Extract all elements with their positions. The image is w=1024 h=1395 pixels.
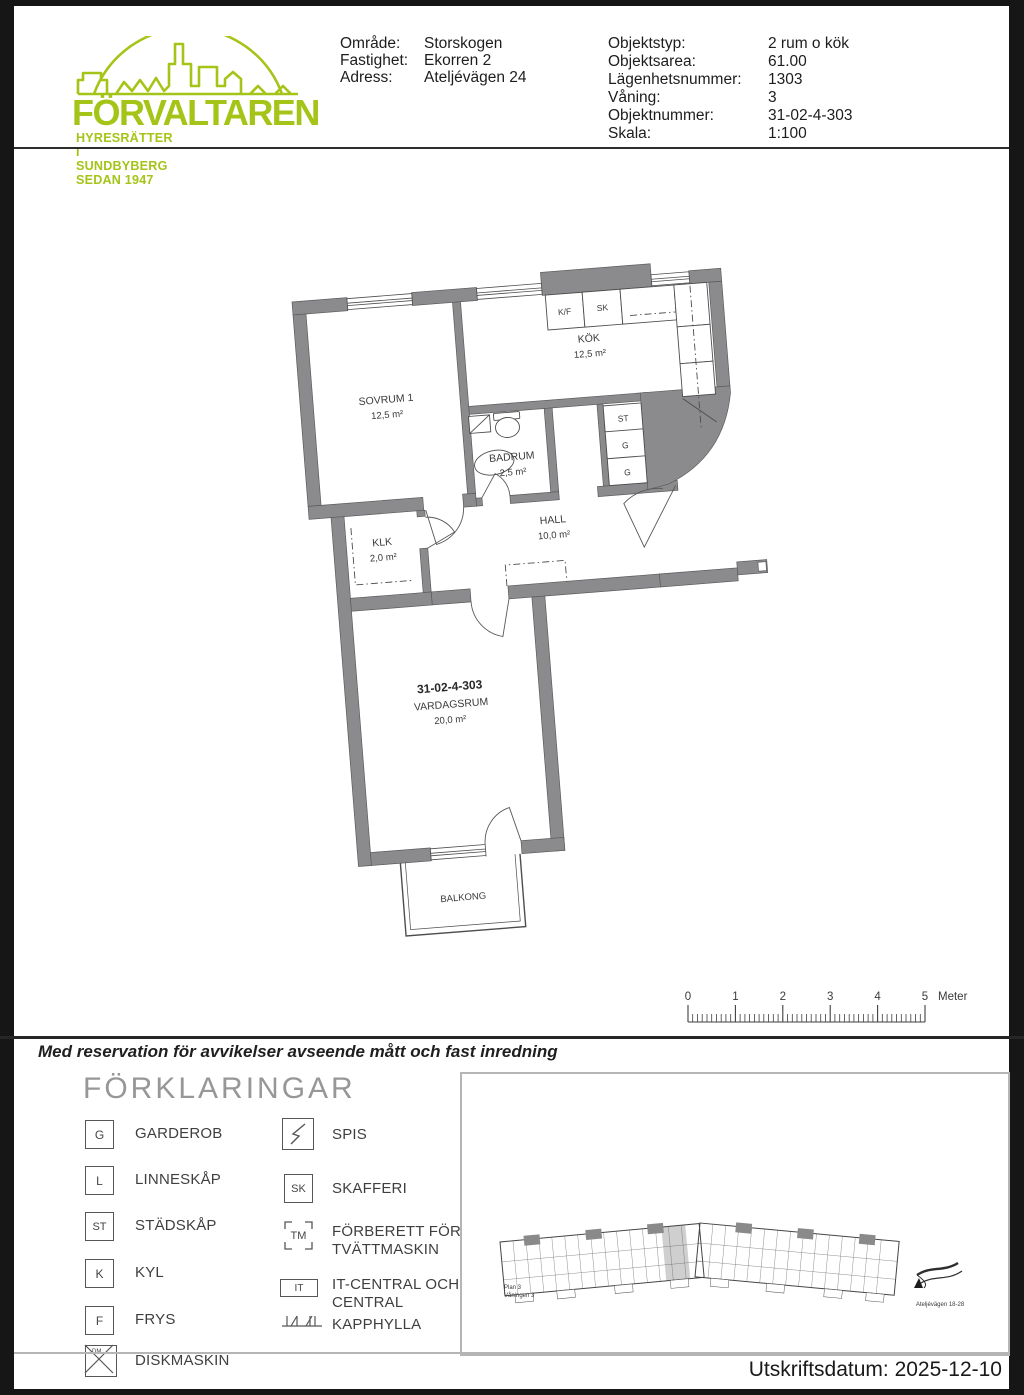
garderob-glyph: G — [95, 1128, 104, 1142]
objektsarea-value: 61.00 — [768, 53, 807, 71]
room-area-kok: 12,5 m² — [574, 348, 607, 361]
legend-title: FÖRKLARINGAR — [83, 1072, 356, 1106]
objektsarea-label: Objektsarea: — [608, 53, 696, 71]
room-label-balkong: BALKONG — [440, 891, 487, 906]
window-icon — [347, 271, 734, 864]
walls — [291, 256, 788, 868]
it-central-icon: IT — [280, 1279, 318, 1297]
lagenhetsnummer-label: Lägenhetsnummer: — [608, 71, 742, 89]
kapphylla-label: KAPPHYLLA — [332, 1316, 421, 1334]
room-area-vardagsrum: 20,0 m² — [434, 714, 467, 727]
apartment-id: 31-02-4-303 — [417, 677, 484, 696]
room-area-klk: 2,0 m² — [370, 552, 398, 565]
room-label-klk: KLK — [372, 536, 393, 550]
kyl-glyph: K — [95, 1267, 103, 1281]
footer-rule — [14, 1352, 1009, 1354]
omrade-label: Område: — [340, 35, 400, 53]
building-overview-box: Plan 3 Våningen 3 Ateljévägen 18-28 — [460, 1072, 1010, 1356]
building-overview-map: Plan 3 Våningen 3 Ateljévägen 18-28 — [462, 1074, 1008, 1354]
objektstyp-value: 2 rum o kök — [768, 35, 849, 53]
overview-caption-line2: Våningen 3 — [504, 1292, 535, 1299]
objektnummer-label: Objektnummer: — [608, 107, 714, 125]
room-label-vardagsrum: VARDAGSRUM — [413, 696, 488, 714]
skala-value: 1:100 — [768, 125, 807, 143]
room-label-kok: KÖK — [577, 332, 600, 346]
logo-name: FÖRVALTAREN — [72, 92, 319, 134]
kapphylla-icon — [280, 1312, 324, 1335]
frys-label: FRYS — [135, 1311, 176, 1329]
garderob-icon: G — [85, 1120, 114, 1149]
scale-unit: Meter — [938, 991, 968, 1003]
header-divider — [14, 147, 1009, 149]
scale-tick-1: 1 — [732, 991, 738, 1003]
adress-label: Adress: — [340, 69, 393, 87]
skafferi-icon: SK — [284, 1174, 313, 1203]
adress-value: Ateljévägen 24 — [424, 69, 527, 87]
skafferi-label: SKAFFERI — [332, 1180, 407, 1198]
scale-tick-3: 3 — [827, 991, 833, 1003]
lagenhetsnummer-value: 1303 — [768, 71, 802, 89]
frys-glyph: F — [96, 1314, 103, 1328]
diskmaskin-icon: DM — [85, 1345, 117, 1377]
scale-tick-4: 4 — [874, 991, 881, 1003]
room-label-hall: HALL — [539, 513, 566, 527]
scale-tick-5: 5 — [922, 991, 928, 1003]
kyl-icon: K — [85, 1259, 114, 1288]
overview-caption-line1: Plan 3 — [504, 1285, 522, 1291]
closet-label-g2: G — [624, 467, 631, 477]
linneskap-icon: L — [85, 1166, 114, 1195]
vaning-value: 3 — [768, 89, 777, 107]
closet-label-g1: G — [622, 440, 629, 450]
fixture-label-kf: K/F — [558, 306, 572, 317]
garderob-label: GARDEROB — [135, 1125, 222, 1143]
room-area-sovrum: 12,5 m² — [371, 409, 404, 422]
stadskap-icon: ST — [85, 1212, 114, 1241]
it-central-glyph: IT — [295, 1283, 304, 1294]
room-label-badrum: BADRUM — [489, 449, 535, 465]
diskmaskin-label: DISKMASKIN — [135, 1352, 230, 1370]
objektstyp-label: Objektstyp: — [608, 35, 686, 53]
kyl-label: KYL — [135, 1264, 164, 1282]
disclaimer-text: Med reservation för avvikelser avseende … — [38, 1042, 558, 1062]
stadskap-glyph: ST — [92, 1221, 106, 1233]
room-label-sovrum: SOVRUM 1 — [358, 392, 414, 408]
print-date: Utskriftsdatum: 2025-12-10 — [749, 1358, 1002, 1382]
page-frame-right — [1009, 0, 1024, 1395]
fastighet-label: Fastighet: — [340, 52, 408, 70]
omrade-value: Storskogen — [424, 35, 502, 53]
logo-tagline: HYRESRÄTTER I SUNDBYBERG SEDAN 1947 — [76, 131, 173, 187]
spis-label: SPIS — [332, 1126, 367, 1144]
page-frame-left — [0, 0, 14, 1395]
skafferi-glyph: SK — [291, 1183, 306, 1195]
room-area-badrum: 2,5 m² — [499, 466, 527, 479]
location-map-icon — [914, 1263, 962, 1288]
scale-tick-2: 2 — [780, 991, 786, 1003]
tvattmaskin-icon: TM — [284, 1221, 313, 1250]
objektnummer-value: 31-02-4-303 — [768, 107, 852, 125]
tvattmaskin-label: FÖRBERETT FÖR TVÄTTMASKIN — [332, 1223, 477, 1259]
frys-icon: F — [85, 1306, 114, 1335]
linneskap-glyph: L — [96, 1174, 103, 1188]
fastighet-value: Ekorren 2 — [424, 52, 491, 70]
room-area-hall: 10,0 m² — [538, 529, 571, 542]
closet-label-st: ST — [617, 413, 629, 424]
vaning-label: Våning: — [608, 89, 661, 107]
linneskap-label: LINNESKÅP — [135, 1171, 221, 1189]
stadskap-label: STÄDSKÅP — [135, 1217, 217, 1235]
scale-tick-0: 0 — [685, 991, 691, 1003]
page-frame-top — [0, 0, 1024, 6]
skala-label: Skala: — [608, 125, 651, 143]
overview-map-label: Ateljévägen 18-28 — [916, 1302, 965, 1308]
floor-plan: SOVRUM 1 12,5 m² KÖK 12,5 m² K/F SK ST G… — [240, 240, 820, 970]
scale-bar: 0 1 2 3 4 5 Meter — [660, 980, 1000, 1035]
page-frame-bottom — [0, 1389, 1024, 1395]
spis-icon — [282, 1118, 314, 1150]
logo-skyline-icon — [72, 36, 304, 98]
section-divider — [0, 1036, 1024, 1039]
fixture-label-sk: SK — [596, 302, 608, 313]
